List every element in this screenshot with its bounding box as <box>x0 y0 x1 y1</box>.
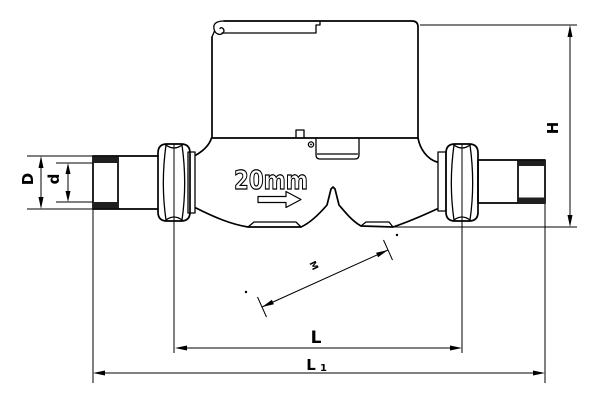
dim-D-arrow-up-icon <box>39 156 44 168</box>
nominal-size-label: 20mm <box>234 166 308 196</box>
right-tailpiece <box>478 160 545 203</box>
dim-d-arrow-up-icon <box>66 163 71 174</box>
dim-bore-diameter: d <box>45 163 93 202</box>
register-lid-seam <box>222 21 320 33</box>
left-tailpiece-outline <box>93 156 158 209</box>
dim-label-L1-subscript: 1 <box>320 363 327 374</box>
seal-button-dot <box>310 144 312 146</box>
right-thread-hatch-bottom <box>518 198 545 204</box>
dim-diagonal-tick-right <box>384 240 393 260</box>
dim-L1-arrow-right-icon <box>533 371 545 376</box>
right-nut-facet-left <box>451 145 454 220</box>
right-coupling-nut <box>438 144 478 221</box>
register-tab <box>296 130 304 137</box>
right-washer <box>438 152 446 211</box>
dim-d-arrow-down-icon <box>66 191 71 202</box>
dim-diagonal-mark: M <box>307 260 320 272</box>
right-tailpiece-outline <box>478 160 545 203</box>
body-left-shoulder <box>196 138 212 155</box>
dim-label-d: d <box>45 174 63 185</box>
body-bottom-profile <box>196 187 437 227</box>
left-nut-facet-left <box>163 145 166 220</box>
dim-label-L: L <box>311 328 322 348</box>
register-box <box>212 21 418 159</box>
dim-L-arrow-right-icon <box>450 346 462 351</box>
body-right-shoulder <box>418 138 437 162</box>
register-lid-hinge-icon <box>212 21 224 37</box>
dim-label-L1-base: L <box>306 356 316 374</box>
water-meter-technical-drawing: D d H L L 1 <box>0 0 603 415</box>
drawing-canvas: D d H L L 1 <box>0 0 603 415</box>
dim-L-arrow-left-icon <box>175 346 187 351</box>
left-thread-hatch-bottom <box>93 202 118 209</box>
dim-diagonal-line <box>262 250 388 307</box>
dim-diagonal-dot-right <box>396 234 398 236</box>
dim-D-arrow-down-icon <box>39 197 44 209</box>
dim-diagonal-dot-left <box>245 291 247 293</box>
left-thread-hatch-top <box>93 157 118 164</box>
left-washer <box>188 152 195 213</box>
dim-H-arrow-up-icon <box>568 25 573 37</box>
right-nut-facet-right <box>470 145 473 220</box>
dim-diagonal: M <box>245 234 398 317</box>
register-box-outline <box>212 21 418 138</box>
dim-diagonal-arrow-right-icon <box>376 250 388 257</box>
left-nut-facet-right <box>182 145 185 220</box>
left-tailpiece <box>93 156 158 209</box>
right-thread-hatch-top <box>518 161 545 167</box>
dim-label-D: D <box>19 173 37 185</box>
dim-length: L <box>174 144 462 353</box>
dim-H-arrow-down-icon <box>568 215 573 227</box>
dim-overall-length: L 1 <box>93 203 545 383</box>
dim-height: H <box>393 25 577 227</box>
dim-diagonal-tick-left <box>258 297 267 317</box>
dim-diagonal-arrow-left-icon <box>262 300 274 307</box>
dim-label-H: H <box>544 122 562 135</box>
left-coupling-nut <box>158 144 195 221</box>
register-mount-block <box>316 138 359 159</box>
dim-L1-arrow-left-icon <box>93 371 105 376</box>
nominal-size-callout: 20mm <box>234 166 308 208</box>
